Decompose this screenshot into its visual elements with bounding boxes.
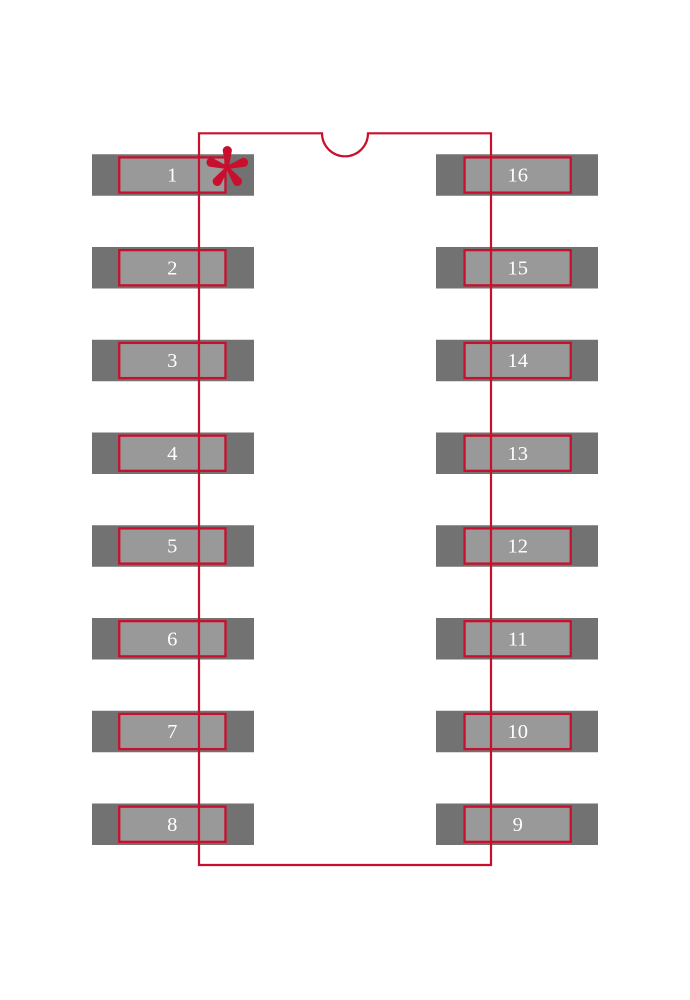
svg-text:7: 7: [167, 721, 177, 743]
svg-text:10: 10: [507, 721, 528, 743]
svg-text:16: 16: [507, 165, 528, 187]
svg-text:11: 11: [508, 628, 528, 650]
svg-text:5: 5: [167, 536, 177, 558]
svg-text:1: 1: [167, 165, 177, 187]
svg-text:2: 2: [167, 257, 177, 279]
svg-text:8: 8: [167, 814, 177, 836]
svg-text:3: 3: [167, 350, 177, 372]
svg-text:9: 9: [513, 814, 523, 836]
svg-text:14: 14: [507, 350, 528, 372]
svg-text:4: 4: [167, 443, 177, 465]
svg-text:15: 15: [507, 257, 528, 279]
svg-text:13: 13: [507, 443, 528, 465]
svg-text:6: 6: [167, 628, 177, 650]
svg-text:12: 12: [507, 536, 528, 558]
